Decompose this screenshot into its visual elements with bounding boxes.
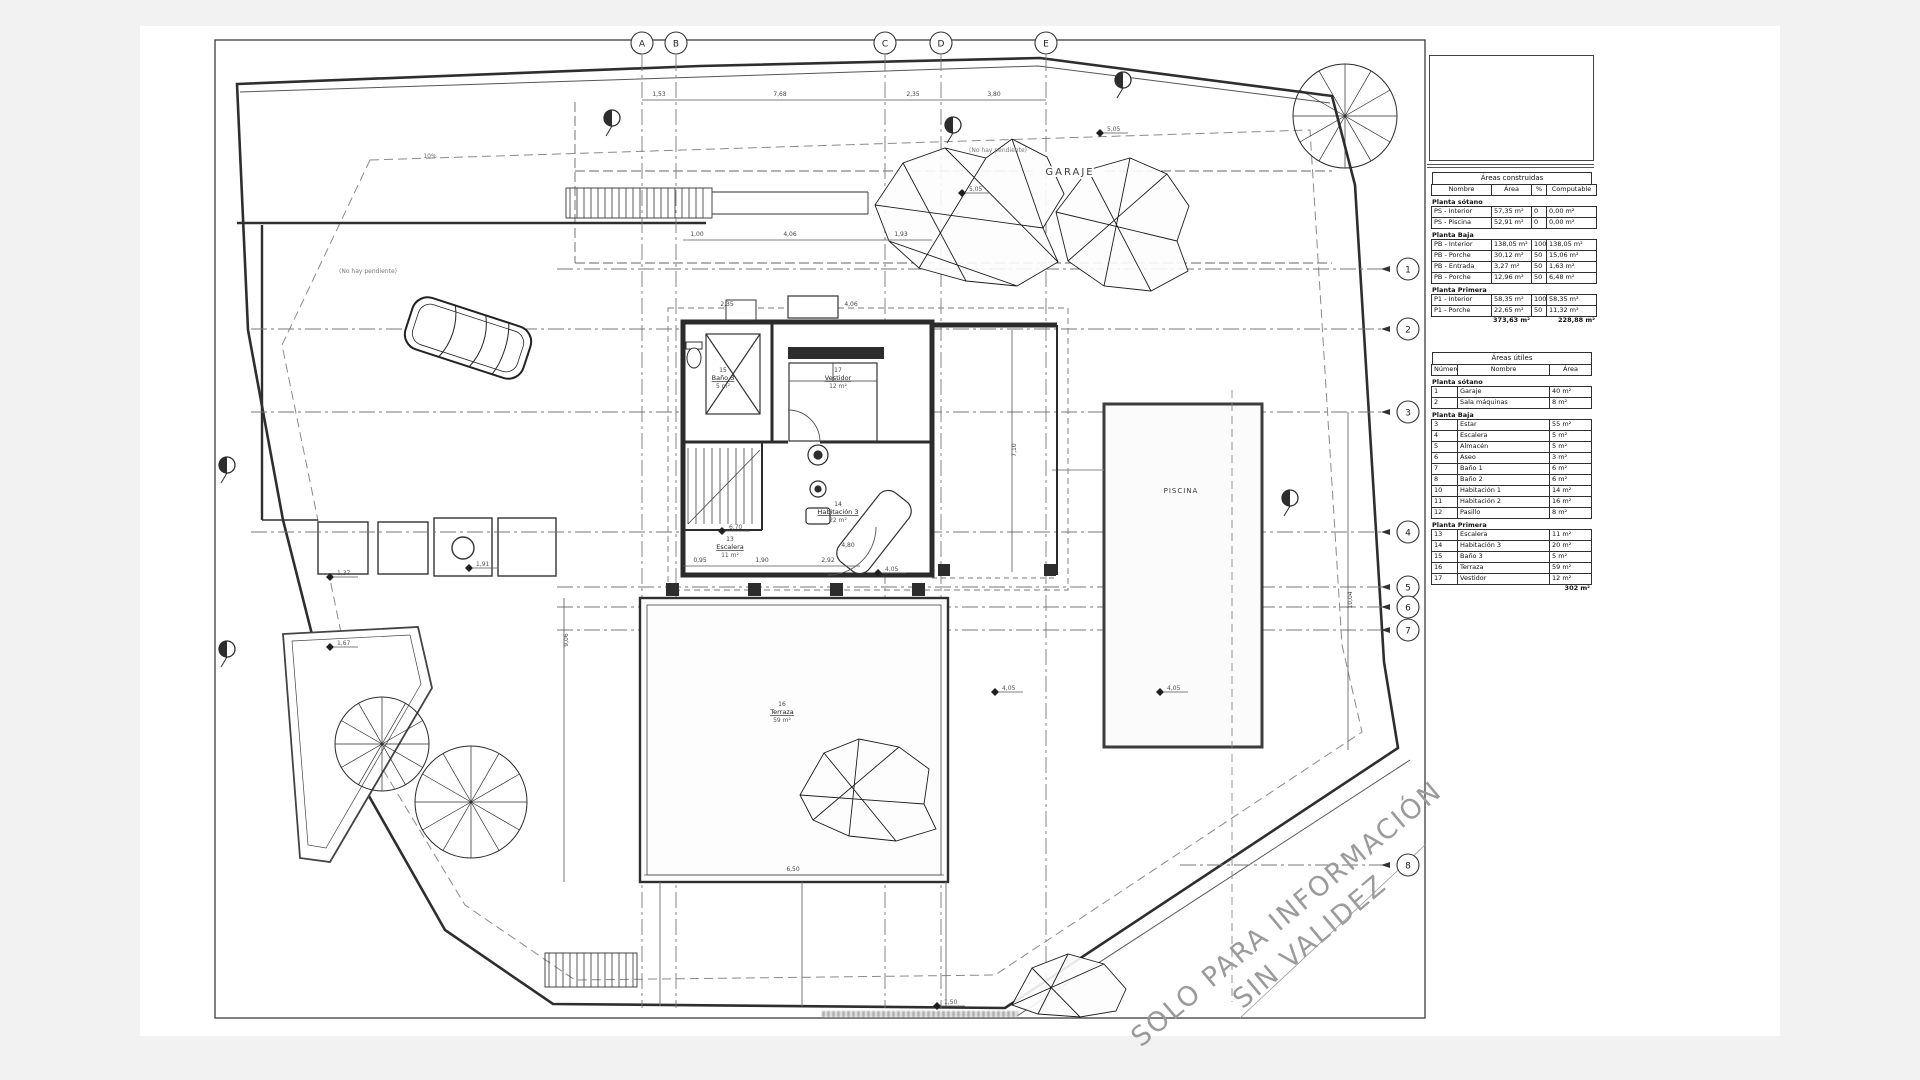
- skylight: [788, 296, 838, 318]
- grid-row-label: 8: [1405, 862, 1411, 872]
- level-value: 1,67: [337, 640, 351, 647]
- room-number: 15: [719, 367, 727, 374]
- table-row: 12Pasillo8 m²: [1432, 508, 1592, 519]
- table-cell: [1431, 316, 1492, 326]
- table-row: NúmeroNombreÁrea: [1432, 365, 1592, 376]
- table-cell: [1531, 316, 1547, 326]
- dimension-label: 1,90: [755, 557, 769, 564]
- grid-col-label: B: [673, 40, 679, 50]
- dimension-label: 0,95: [693, 557, 707, 564]
- level-value: 4,05: [1002, 685, 1016, 692]
- grid-col-label: A: [639, 40, 646, 50]
- table-cell: Nombre: [1457, 364, 1550, 376]
- table-row: PS - Piscina52,91 m²00,00 m²: [1432, 218, 1592, 229]
- slope-label: 10%: [423, 153, 437, 160]
- grid-row-label: 6: [1405, 604, 1411, 614]
- room-name: Escalera: [716, 543, 744, 551]
- illegible-watermark-strip: [822, 1011, 1018, 1017]
- room-area: 5 m²: [716, 383, 731, 390]
- table-cell: Computable: [1546, 184, 1597, 196]
- level-value: 6,70: [729, 524, 743, 531]
- table-row: 302 m²: [1432, 585, 1592, 594]
- table-cell: PS - Piscina: [1431, 217, 1492, 229]
- piscina-label: PISCINA: [1164, 487, 1199, 495]
- title-block: [1429, 55, 1594, 161]
- grid-col-label: C: [882, 40, 888, 50]
- level-value: 5,05: [1107, 126, 1121, 133]
- room-number: 14: [834, 501, 842, 508]
- grid-row-label: 1: [1405, 266, 1411, 276]
- dimension-label: 2,35: [720, 301, 734, 308]
- table-cell: 12,96 m²: [1491, 272, 1532, 284]
- table-cell: PB - Porche: [1431, 272, 1492, 284]
- level-value: 1,50: [944, 999, 958, 1006]
- room-area: 12 m²: [829, 383, 847, 390]
- grid-row-label: 7: [1405, 627, 1411, 637]
- level-value: 4,05: [1167, 685, 1181, 692]
- table-cell: Sala máquinas: [1457, 397, 1550, 409]
- table-cell: 0: [1531, 217, 1547, 229]
- no-pendiente-label: (No hay pendiente): [339, 268, 397, 275]
- room-area: 59 m²: [773, 717, 791, 724]
- table-row: 2Sala máquinas8 m²: [1432, 398, 1592, 409]
- level-value: 4,05: [885, 566, 899, 573]
- dimension-label: 9,06: [563, 633, 570, 647]
- dimension-label: 2,35: [906, 91, 920, 98]
- room-area: 11 m²: [721, 552, 739, 559]
- room-name: Baño 3: [712, 374, 735, 382]
- table-row: PB - Porche12,96 m²506,48 m²: [1432, 273, 1592, 284]
- toilet-icon: [686, 342, 702, 368]
- room-number: 13: [726, 536, 734, 543]
- table-cell: 8 m²: [1549, 397, 1592, 409]
- areas-utiles-table: Áreas útilesNúmeroNombreÁreaPlanta sótan…: [1432, 352, 1592, 594]
- dimension-label: 2,92: [821, 557, 835, 564]
- grid-row-label: 4: [1405, 529, 1411, 539]
- dimension-label: 7,68: [773, 91, 787, 98]
- level-value: 1,91: [476, 561, 490, 568]
- grid-row-label: 3: [1405, 409, 1411, 419]
- level-value: 1,37: [337, 570, 351, 577]
- dimension-label: 3,80: [987, 91, 1001, 98]
- table-cell: %: [1531, 184, 1547, 196]
- dimension-label: 1,93: [894, 231, 908, 238]
- table-cell: 2: [1431, 397, 1458, 409]
- room-name: Terraza: [769, 708, 793, 716]
- room-area: 22 m²: [829, 517, 847, 524]
- table-cell: Área: [1549, 364, 1592, 376]
- grid-row-label: 2: [1405, 326, 1411, 336]
- table-cell: 6,48 m²: [1546, 272, 1597, 284]
- table-cell: 50: [1531, 272, 1547, 284]
- grid-col-label: D: [938, 40, 945, 50]
- table-cell: 228,88 m²: [1546, 316, 1597, 326]
- site-plan-drawing: ABCDE12345678: [0, 0, 1920, 1080]
- table-cell: 12: [1431, 507, 1458, 519]
- dimension-label: 7,10: [1011, 443, 1018, 457]
- level-value: 5,05: [969, 186, 983, 193]
- dimension-label: 4,80: [841, 542, 855, 549]
- room-number: 17: [834, 367, 842, 374]
- table-cell: 8 m²: [1549, 507, 1592, 519]
- table-cell: 302 m²: [1549, 584, 1592, 594]
- grid-row-label: 5: [1405, 584, 1411, 594]
- dimension-label: 4,06: [783, 231, 797, 238]
- planters: [318, 518, 556, 576]
- table-row: NombreÁrea%Computable: [1432, 185, 1592, 196]
- room-number: 16: [778, 701, 786, 708]
- planter-circle: [452, 537, 474, 559]
- dimension-label: 10,04: [1347, 591, 1354, 608]
- table-cell: 52,91 m²: [1491, 217, 1532, 229]
- dimension-label: 6,50: [786, 866, 800, 873]
- table-row: 373,63 m²228,88 m²: [1432, 317, 1592, 326]
- room-name: Habitación 3: [817, 508, 858, 516]
- room-name: Vestidor: [825, 374, 852, 382]
- table-cell: Nombre: [1431, 184, 1492, 196]
- dimension-label: 4,06: [844, 301, 858, 308]
- table-cell: [1431, 584, 1458, 594]
- panel-separator: [1427, 164, 1594, 168]
- garaje-label: GARAJE: [1045, 167, 1094, 178]
- grid-col-label: E: [1043, 40, 1049, 50]
- table-cell: Área: [1491, 184, 1532, 196]
- dimension-label: 1,00: [690, 231, 704, 238]
- dimension-label: 1,53: [652, 91, 666, 98]
- spoke-tree-icon: [335, 697, 429, 791]
- no-pendiente-label: (No hay pendiente): [969, 147, 1027, 154]
- table-cell: [1457, 584, 1550, 594]
- table-cell: Pasillo: [1457, 507, 1550, 519]
- areas-construidas-table: Áreas construidasNombreÁrea%ComputablePl…: [1432, 172, 1592, 326]
- table-cell: Número: [1431, 364, 1458, 376]
- table-cell: 0,00 m²: [1546, 217, 1597, 229]
- wardrobe: [788, 347, 884, 359]
- table-cell: 373,63 m²: [1491, 316, 1532, 326]
